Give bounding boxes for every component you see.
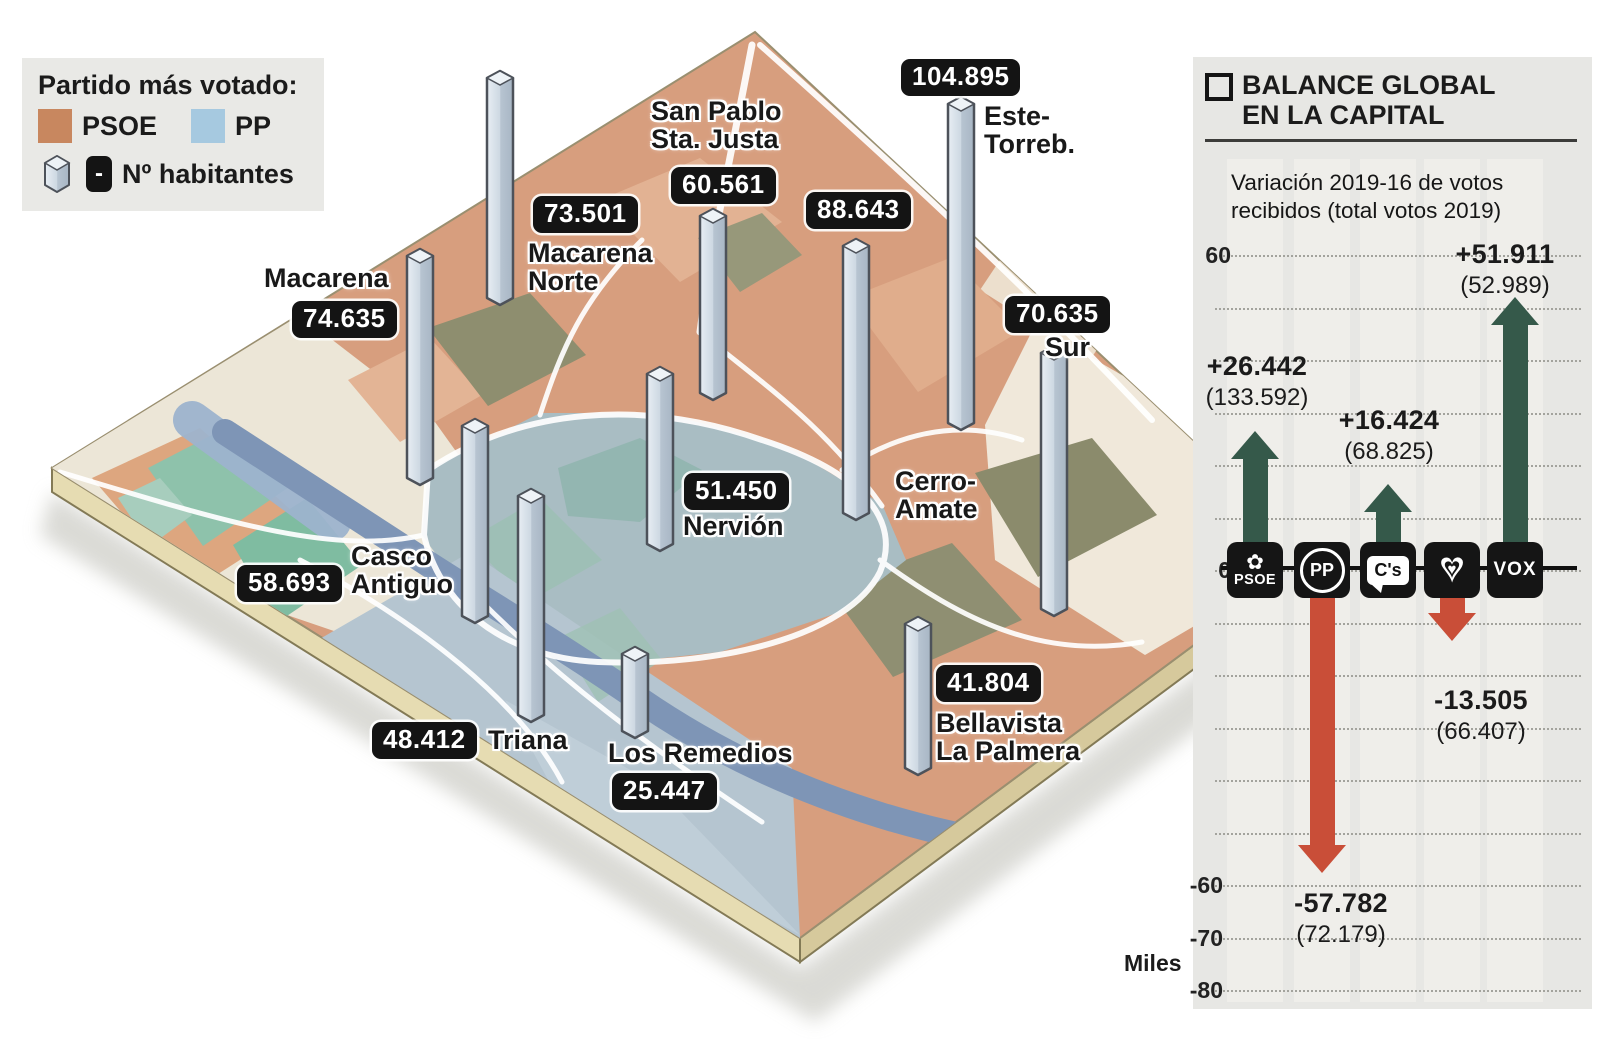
value-box-macarena-norte: 73.501 <box>533 196 638 233</box>
pp-color-swatch <box>191 109 225 143</box>
podemos-heart-icon: ♥ ♥ ♥ <box>1424 542 1480 598</box>
arrow-podemos <box>1428 598 1476 641</box>
legend-title: Partido más votado: <box>38 72 308 99</box>
psoe-rose-icon: ✿ <box>1246 553 1264 573</box>
pp-values: -57.782(72.179) <box>1271 888 1411 949</box>
square-bullet-icon <box>1205 73 1233 101</box>
arrow-vox <box>1491 297 1539 542</box>
value-box-san-pablo: 60.561 <box>671 167 776 204</box>
value-box-macarena: 74.635 <box>292 301 397 338</box>
district-label-nervion: Nervión <box>683 512 784 540</box>
value-box-triana: 48.412 <box>372 722 477 759</box>
ytick-60: 60 <box>1187 242 1231 269</box>
gridline <box>1215 780 1581 782</box>
district-label-sur: Sur <box>1045 333 1090 361</box>
minus-badge-icon: - <box>86 156 112 192</box>
district-label-este-torreblanca: Este- Torreb. <box>984 102 1075 159</box>
ytick-m70: -70 <box>1179 925 1223 952</box>
district-label-los-remedios: Los Remedios <box>608 739 793 767</box>
panel-title: BALANCE GLOBAL EN LA CAPITAL <box>1205 70 1577 142</box>
legend-pp-label: PP <box>235 111 271 142</box>
ytick-m80: -80 <box>1179 977 1223 1004</box>
legend-psoe-label: PSOE <box>82 111 157 142</box>
value-box-casco-antiguo: 58.693 <box>237 565 342 602</box>
ciudadanos-values: +16.424(68.825) <box>1319 405 1459 466</box>
district-label-macarena-norte: Macarena Norte <box>528 239 653 296</box>
ytick-m60: -60 <box>1179 872 1223 899</box>
value-box-bellavista: 41.804 <box>936 665 1041 702</box>
district-label-macarena: Macarena <box>264 264 389 292</box>
podemos-values: -13.505(66.407) <box>1411 685 1551 746</box>
panel-title-text: BALANCE GLOBAL EN LA CAPITAL <box>1242 70 1495 130</box>
vox-logo-icon: VOX <box>1487 542 1543 598</box>
psoe-color-swatch <box>38 109 72 143</box>
arrow-psoe <box>1231 431 1279 542</box>
gridline <box>1215 885 1581 887</box>
balance-panel: BALANCE GLOBAL EN LA CAPITAL Variación 2… <box>1193 57 1592 1009</box>
district-label-casco-antiguo: Casco Antiguo <box>351 542 453 599</box>
district-label-san-pablo: San Pablo Sta. Justa <box>651 97 782 154</box>
value-box-este-torreblanca: 104.895 <box>901 59 1020 96</box>
vox-values: +51.911(52.989) <box>1435 239 1575 300</box>
psoe-values: +26.442(133.592) <box>1187 351 1327 412</box>
gridline <box>1215 833 1581 835</box>
heart-inner: ♥ <box>1448 562 1457 577</box>
legend: Partido más votado: PSOE PP - Nº habitan… <box>22 58 324 211</box>
pp-icon-text: PP <box>1300 548 1345 593</box>
panel-subtitle: Variación 2019-16 de votos recibidos (to… <box>1231 169 1581 225</box>
psoe-logo-icon: ✿ PSOE <box>1227 542 1283 598</box>
arrow-ciudadanos <box>1364 484 1412 542</box>
cs-icon-text: C's <box>1367 556 1409 585</box>
psoe-icon-text: PSOE <box>1234 573 1276 588</box>
district-label-triana: Triana <box>488 726 568 754</box>
axis-unit-label: Miles <box>1124 950 1182 977</box>
value-box-nervion: 51.450 <box>684 473 789 510</box>
value-box-sur: 70.635 <box>1005 296 1110 333</box>
prism-icon <box>38 153 76 195</box>
vox-icon-text: VOX <box>1493 559 1536 581</box>
ytick-0: 0 <box>1187 557 1231 584</box>
pp-logo-icon: PP <box>1294 542 1350 598</box>
gridline <box>1215 675 1581 677</box>
legend-habitantes-label: Nº habitantes <box>122 159 294 190</box>
ciudadanos-logo-icon: C's <box>1360 542 1416 598</box>
value-box-los-remedios: 25.447 <box>612 773 717 810</box>
gridline <box>1215 623 1581 625</box>
arrow-pp <box>1298 598 1346 873</box>
district-label-cerro-amate: Cerro- Amate <box>895 467 978 524</box>
value-box-cerro-amate: 88.643 <box>806 192 911 229</box>
gridline <box>1215 990 1581 992</box>
district-label-bellavista: Bellavista La Palmera <box>936 709 1080 766</box>
infographic-sevilla-elections: 74.635 Macarena 73.501 Macarena Norte 60… <box>0 0 1600 1060</box>
